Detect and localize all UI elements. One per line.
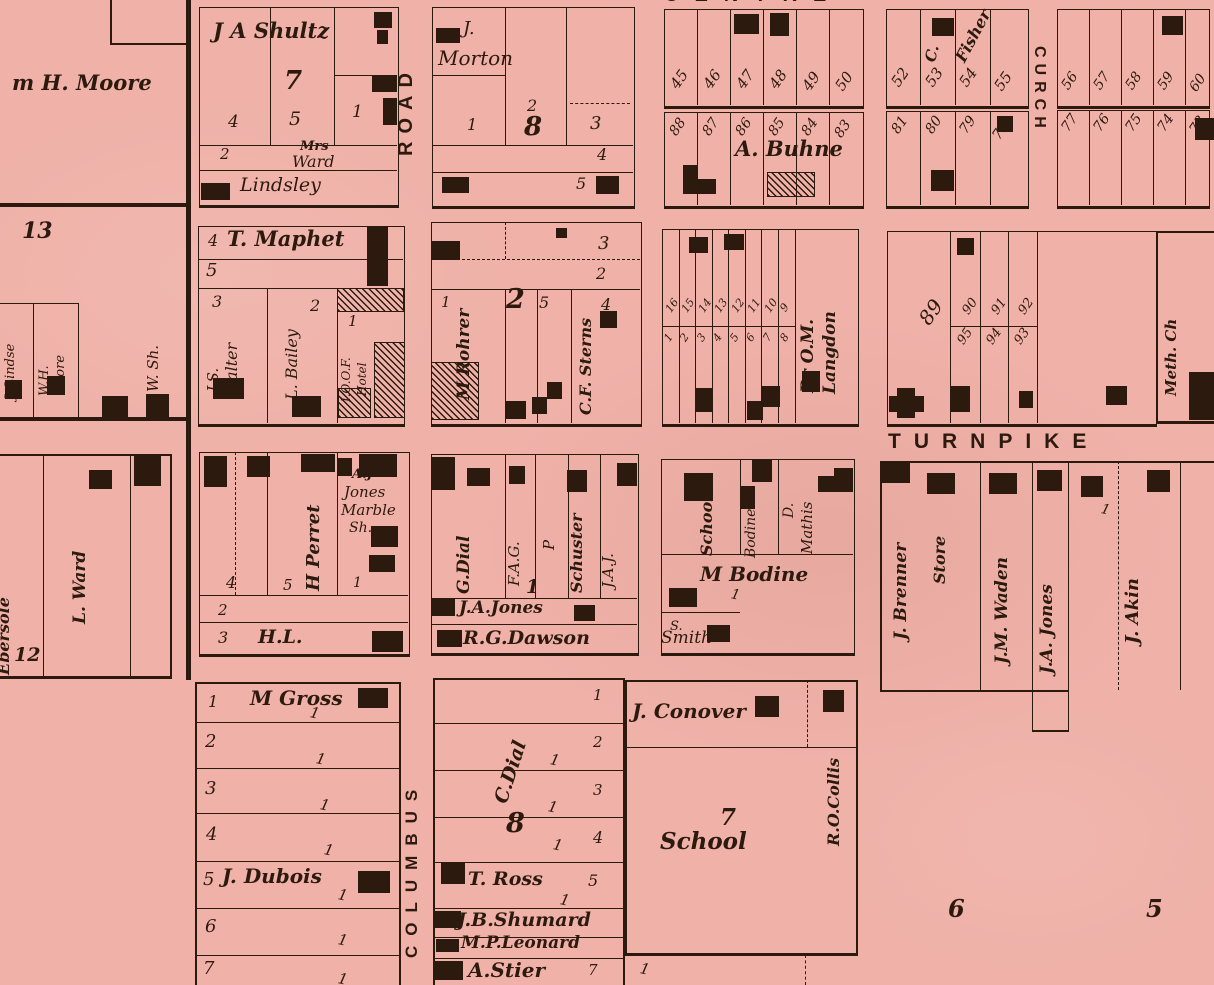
building [146, 394, 169, 418]
lot-line [195, 813, 399, 814]
lot-number: 1 [352, 104, 363, 121]
lot-line [433, 817, 623, 818]
lot-line [805, 955, 806, 985]
owner-label: J.A.Jones [459, 600, 543, 617]
owner-label: Mathis [800, 468, 815, 554]
building [134, 456, 161, 486]
lot-line [195, 861, 399, 862]
lot-line [0, 303, 78, 304]
building [770, 13, 789, 36]
block-number: 13 [22, 220, 53, 242]
lot-line [571, 289, 572, 423]
building [437, 630, 462, 647]
lot-line [730, 112, 731, 205]
block-border [625, 680, 858, 682]
building [441, 863, 465, 884]
owner-label: M Rohrer [456, 288, 473, 400]
building [752, 460, 772, 482]
block-number: 8 [506, 810, 525, 837]
building [1037, 470, 1062, 491]
section-number: 5 [1146, 897, 1163, 921]
block-border [1057, 9, 1210, 109]
lot-number: 5 [206, 262, 217, 280]
lot-line [796, 9, 797, 105]
building [247, 456, 270, 477]
block-border [856, 680, 858, 955]
building [436, 939, 459, 952]
building [574, 605, 595, 621]
lot-number: 2 [593, 735, 603, 750]
owner-label: J.B.Shumard [457, 911, 591, 930]
owner-label: Schuster [569, 477, 585, 593]
owner-label: L. Bailey [284, 295, 300, 400]
lot-line [195, 908, 399, 909]
building [436, 28, 460, 43]
lot-number: 1 [593, 688, 603, 703]
lot-line [1153, 9, 1154, 105]
owner-label: J A Shultz [213, 20, 329, 41]
owner-label: C.Dial [492, 739, 530, 806]
owner-label: J.A. Jones [1039, 526, 1056, 674]
owner-label: Ward [292, 154, 334, 170]
owner-label: A.Stier [468, 960, 545, 980]
lot-line [920, 111, 921, 205]
owner-label: Morton [438, 48, 513, 68]
lot-number: 5 [283, 578, 293, 593]
building [432, 598, 455, 616]
owner-label: m H. Moore [12, 72, 152, 93]
owner-label: Bodine [744, 486, 758, 558]
building [1106, 386, 1127, 405]
building [834, 468, 853, 492]
building [467, 468, 490, 486]
lot-number: 7 [203, 960, 214, 978]
owner-label: F.A.G. [507, 498, 522, 586]
owner-label: G.Dial [456, 494, 473, 594]
lot-number: 5 [203, 871, 214, 889]
owner-label: Dr O.M. [800, 268, 817, 393]
lot-line [795, 229, 796, 423]
building [951, 386, 970, 412]
building [377, 30, 388, 44]
owner-label: M Bodine [700, 564, 808, 584]
owner-label: D. [782, 478, 796, 518]
building [989, 473, 1017, 494]
owner-label: J.A.J. [601, 496, 616, 588]
lot-line [432, 75, 505, 76]
building [358, 871, 390, 893]
lot-line [505, 7, 506, 145]
building [823, 690, 844, 712]
building [927, 473, 955, 494]
lot-number: 1 [441, 295, 451, 310]
building [1189, 372, 1214, 420]
lot-number: 5 [289, 110, 301, 129]
survey-tick: 1 [639, 961, 651, 978]
building [931, 170, 954, 191]
building [818, 476, 836, 492]
owner-label: M.P.Leonard [461, 935, 580, 952]
lot-line [955, 111, 956, 205]
lot-line [730, 9, 731, 105]
owner-label: Langdon [822, 262, 839, 394]
owner-label: J. Dubois [222, 866, 322, 886]
owner-label: A. Buhne [735, 138, 843, 159]
owner-label: J. Lindse [4, 308, 17, 400]
owner-label: W. Sh. [146, 316, 161, 392]
lot-line [829, 9, 830, 105]
field-line [110, 43, 188, 45]
survey-tick: 1 [547, 799, 559, 816]
survey-tick: 1 [337, 887, 349, 904]
street-label-centre: CENTRE [664, 0, 842, 5]
owner-label: R.G.Dawson [463, 629, 590, 648]
lot-line [195, 768, 399, 769]
lot-number: 4 [228, 114, 239, 131]
lot-line [1157, 231, 1214, 233]
building [358, 688, 388, 708]
owner-label: Ebersole [0, 515, 12, 675]
building [669, 588, 697, 607]
owner-label: More [54, 320, 67, 390]
lot-number: 3 [590, 115, 601, 133]
lot-number: 1 [467, 117, 477, 133]
owner-label: Lindsley [240, 176, 321, 195]
lot-line [566, 7, 567, 145]
lot-line [462, 259, 640, 260]
block-number: 2 [506, 286, 525, 313]
lot-line [1121, 9, 1122, 105]
lot-number: 4 [601, 297, 611, 313]
owner-label: Walter [224, 298, 240, 396]
building [431, 241, 460, 260]
lot-line [33, 303, 34, 418]
lot-line [763, 9, 764, 105]
lot-line [433, 770, 623, 771]
survey-tick: 1 [559, 892, 571, 909]
owner-label: H.L. [258, 628, 303, 647]
owner-label: W.H. [38, 318, 51, 396]
lot-line [661, 612, 740, 613]
lot-line [505, 222, 506, 259]
block-number: 7 [720, 806, 736, 829]
survey-tick: 1 [1099, 502, 1111, 518]
owner-label: P [542, 516, 557, 550]
lot-line [880, 690, 1069, 692]
lot-line [130, 454, 131, 678]
lot-number: 2 [310, 298, 320, 314]
building [367, 227, 388, 286]
building [1162, 16, 1183, 35]
block-border [880, 461, 882, 690]
lot-line [267, 288, 268, 423]
hatched-building [767, 172, 815, 197]
building [372, 631, 403, 652]
building [337, 458, 352, 476]
building [755, 696, 779, 717]
owner-label: Meth. Ch [1164, 268, 1179, 396]
owner-label: C.F. Sterns [578, 293, 594, 415]
owner-label: H Perret [305, 477, 323, 591]
building [102, 396, 128, 418]
survey-tick: 1 [323, 842, 335, 859]
street-edge [0, 203, 191, 207]
lot-number: 4 [208, 233, 218, 249]
survey-tick: 1 [552, 837, 564, 854]
lot-number: 6 [205, 918, 216, 936]
street-label-road: ROAD [396, 16, 416, 156]
lot-line [778, 459, 779, 554]
owner-label: Jones [344, 485, 385, 500]
building [509, 466, 525, 484]
street-label-turnpike: TURNPIKE [888, 431, 1099, 452]
block-border [195, 682, 399, 684]
section-number: 6 [948, 897, 965, 921]
field-line [110, 0, 112, 45]
lot-line [195, 722, 399, 723]
building [369, 555, 395, 572]
owner-initial: C. [923, 43, 942, 63]
plat-map-canvas: m H. Moore J A Shultz 7 4 5 1 2 Mrs Ward… [0, 0, 1214, 985]
lot-number: 7 [588, 963, 598, 978]
building [724, 234, 744, 250]
lot-line [195, 955, 399, 956]
building [1081, 476, 1103, 497]
lot-line [1157, 231, 1158, 423]
owner-label: A.J [352, 468, 373, 481]
lot-line [662, 326, 795, 327]
block-number: 8 [524, 114, 542, 140]
building [1147, 470, 1170, 492]
owner-label: J.M. Waden [994, 506, 1011, 664]
building [596, 176, 619, 194]
lot-number: 5 [588, 873, 598, 889]
lot-line [990, 111, 991, 205]
lot-line [199, 622, 408, 623]
building [617, 463, 637, 486]
owner-label: M Gross [250, 688, 343, 708]
block-number: 7 [284, 68, 302, 94]
block-border [880, 461, 1214, 463]
lot-line [431, 624, 637, 625]
lot-number: 3 [218, 630, 228, 646]
building [432, 457, 455, 490]
survey-tick: 1 [337, 932, 349, 949]
lot-line [570, 103, 630, 104]
owner-label: T. Maphet [227, 228, 344, 249]
survey-tick: 1 [337, 971, 349, 985]
building [747, 401, 763, 420]
owner-label: School [699, 476, 715, 556]
hatched-building [374, 342, 405, 418]
lot-number: 4 [206, 826, 217, 844]
lot-number: 3 [598, 235, 609, 253]
owner-label: R.O.Collis [826, 728, 842, 846]
lot-line [432, 172, 633, 173]
lot-number: 2 [596, 266, 606, 282]
lot-line [43, 454, 44, 678]
building [506, 401, 526, 419]
building [1019, 391, 1033, 408]
owner-label: I.O.O.F. [340, 330, 352, 402]
owner-label: Sh. [349, 521, 372, 535]
lot-line [433, 723, 623, 724]
lot-line [1089, 9, 1090, 105]
lot-line [1037, 231, 1038, 423]
building [434, 961, 463, 980]
lot-line [1180, 461, 1181, 690]
lot-line [1118, 461, 1119, 690]
survey-tick: 1 [309, 705, 321, 722]
lot-line [1185, 9, 1186, 105]
lot-number: 5 [539, 295, 549, 311]
street-edge [0, 676, 172, 679]
lot-line [78, 303, 79, 418]
block-border [433, 678, 623, 680]
lot-line [1157, 421, 1214, 424]
lot-line [625, 747, 858, 748]
building [683, 165, 698, 194]
street-label-church: CURCH [1031, 46, 1047, 171]
building [897, 388, 915, 418]
owner-label: J.S. [206, 302, 221, 392]
building [442, 177, 469, 193]
block-border [625, 953, 858, 956]
block-border [625, 680, 627, 955]
building [374, 12, 392, 28]
building [89, 470, 112, 489]
building [372, 75, 397, 92]
owner-label: J. Akin [1124, 526, 1142, 644]
building [371, 526, 398, 547]
building [532, 397, 547, 414]
owner-label: J. Brenner [893, 498, 910, 640]
building [201, 183, 230, 200]
building [734, 14, 759, 34]
block-border [195, 682, 197, 985]
lot-line [697, 9, 698, 105]
lot-number: 4 [597, 147, 607, 163]
hatched-building [337, 288, 404, 312]
lot-number: 3 [593, 783, 603, 798]
building [696, 388, 712, 412]
building [547, 382, 562, 399]
survey-tick: 1 [549, 752, 561, 769]
building [301, 454, 335, 472]
owner-label: Store [932, 512, 948, 584]
owner-label: T. Ross [468, 870, 543, 889]
lot-number: 2 [220, 147, 230, 162]
owner-label: J. [463, 20, 475, 38]
block-number: 1 [526, 578, 539, 597]
lot-line [170, 454, 172, 678]
lot-line [199, 595, 408, 596]
building [882, 462, 910, 483]
owner-label: School [660, 830, 747, 853]
building [932, 18, 954, 36]
lot-line [980, 461, 981, 690]
building [957, 238, 974, 255]
owner-label: Smith [661, 630, 712, 647]
building [556, 228, 567, 238]
lot-number: 1 [208, 694, 218, 710]
survey-tick: 1 [319, 797, 331, 814]
owner-label: Marble [341, 503, 396, 518]
building [204, 456, 227, 487]
street-label-columbus: COLUMBUS [403, 648, 420, 958]
lot-line [1185, 110, 1186, 205]
building [689, 237, 708, 253]
building [762, 386, 780, 407]
block-border [399, 682, 401, 985]
street-edge [186, 0, 191, 680]
owner-label: Hotel [356, 344, 368, 396]
lot-number: 2 [218, 603, 228, 618]
lot-number: 2 [205, 733, 216, 751]
lot-line [807, 680, 808, 747]
lot-number: 1 [348, 314, 358, 329]
owner-label: J. Conover [632, 701, 746, 721]
owner-label: L. Ward [72, 522, 89, 624]
lot-number: 4 [593, 830, 603, 846]
lot-number: 1 [353, 576, 362, 590]
lot-number: 4 [226, 575, 236, 591]
lot-number: 5 [576, 176, 586, 192]
block-number: 12 [14, 646, 40, 665]
lot-number: 3 [205, 780, 216, 798]
lot-line [1032, 730, 1069, 732]
survey-tick: 1 [315, 751, 327, 768]
